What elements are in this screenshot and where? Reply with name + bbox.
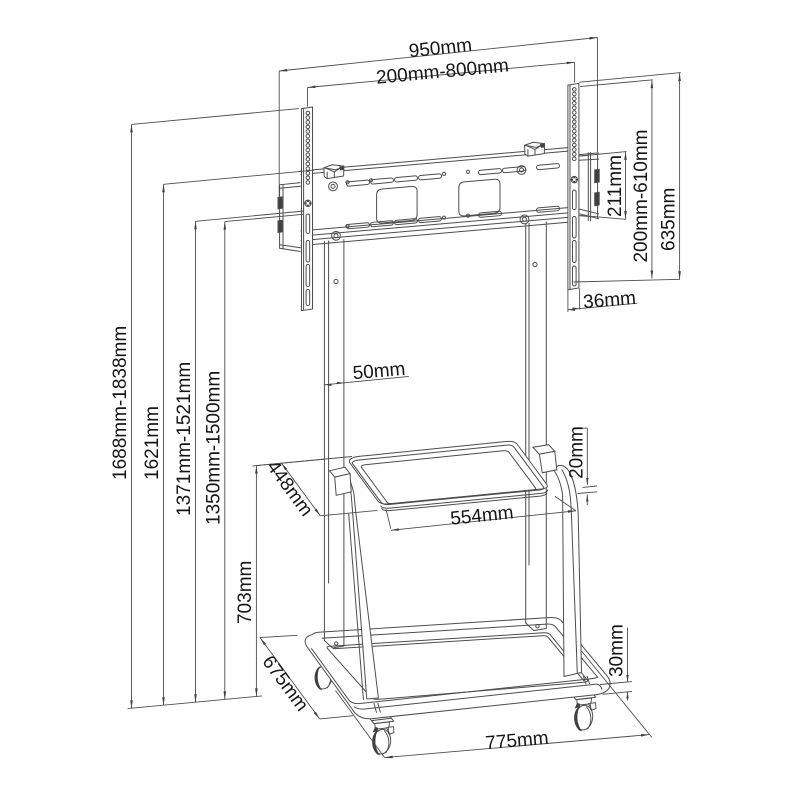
svg-text:1621mm: 1621mm — [142, 406, 163, 480]
svg-text:211mm: 211mm — [605, 155, 626, 217]
svg-text:30mm: 30mm — [606, 624, 627, 677]
svg-text:1350mm-1500mm: 1350mm-1500mm — [203, 371, 224, 525]
svg-text:20mm: 20mm — [567, 426, 588, 479]
svg-text:635mm: 635mm — [659, 188, 680, 251]
svg-text:200mm-610mm: 200mm-610mm — [631, 129, 652, 262]
svg-text:1371mm-1521mm: 1371mm-1521mm — [174, 362, 195, 516]
svg-text:36mm: 36mm — [582, 288, 636, 313]
svg-text:1688mm-1838mm: 1688mm-1838mm — [110, 326, 131, 480]
svg-text:703mm: 703mm — [235, 561, 256, 624]
